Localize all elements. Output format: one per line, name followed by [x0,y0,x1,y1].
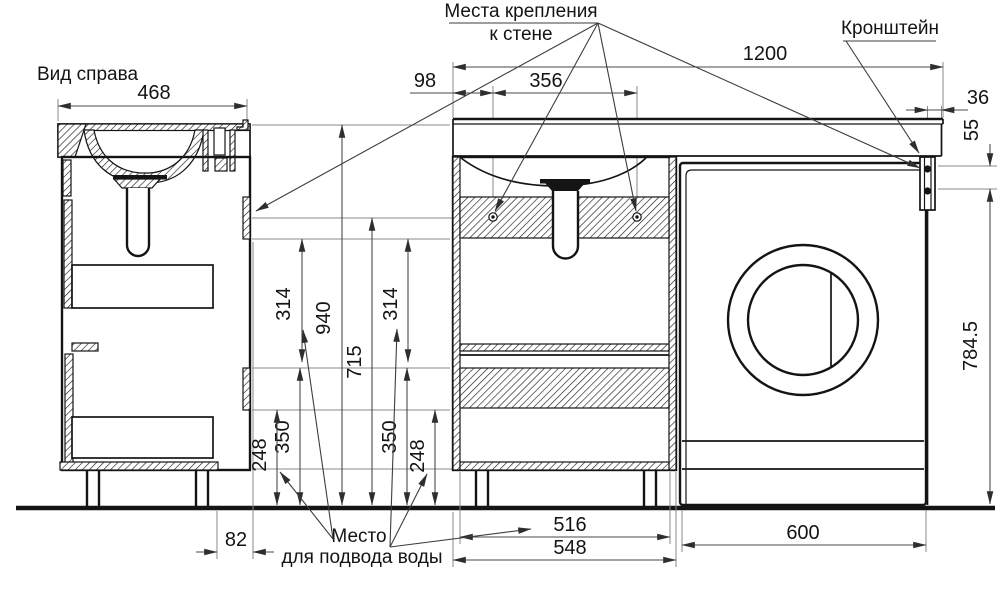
dim-washer-height: 784.5 [960,321,982,371]
dim-bracket-screw-spacing: 55 [961,119,983,141]
dim-inner-width: 516 [553,514,586,536]
dim-total-width: 1200 [743,43,788,65]
dim-lower-rail-bottom-right: 248 [407,439,429,472]
side-view-wall-rail-top [243,197,250,239]
bracket-label: Кронштейн [841,18,939,39]
dim-mount-height: 715 [344,345,366,378]
dim-lower-rail-top-left: 350 [272,420,294,453]
side-view-cabinet [60,157,250,507]
drain-trap [553,191,578,259]
dim-wall-offset: 98 [414,70,436,92]
dim-washer-width: 600 [786,522,819,544]
dim-rail-gap-right: 314 [380,287,402,320]
side-view-sink [58,120,250,256]
technical-drawing-page: 468 1200 98 356 36 55 784.5 940 715 314 … [0,0,1001,609]
front-shelf [460,344,669,351]
water-supply-label-line2: для подвода воды [282,547,443,568]
dim-bracket-offset: 36 [967,87,989,109]
view-title: Вид справа [37,64,138,85]
dim-back-clearance: 82 [225,529,247,551]
wall-mount-label-line1: Места крепления [444,1,597,22]
vanity-washer-drawing: 468 1200 98 356 36 55 784.5 940 715 314 … [0,0,1001,609]
countertop [453,119,943,156]
bracket-screw-top [924,165,931,172]
front-right-panel [669,157,676,470]
side-view-wall-rail-bottom [243,368,250,410]
dim-cabinet-width: 548 [553,537,586,559]
water-supply-label-line1: Место [331,526,386,547]
dim-overall-height: 940 [313,301,335,334]
side-view-drawer-upper [72,265,213,308]
front-view-cabinet [453,157,676,507]
side-view-drawer-lower [72,417,213,458]
dim-rail-gap-left: 314 [273,287,295,320]
side-view [58,120,250,507]
wall-mount-label-line2: к стене [489,24,552,45]
dim-mount-spacing: 356 [529,70,562,92]
front-bottom-panel [460,462,669,470]
dim-side-width: 468 [137,82,170,104]
dim-lower-rail-top-right: 350 [379,420,401,453]
washing-machine [680,163,926,505]
front-left-panel [453,157,460,470]
front-wall-rail-bottom [460,368,669,408]
dim-lower-rail-bottom-left: 248 [249,438,271,471]
bracket-screw-bottom [924,187,931,194]
